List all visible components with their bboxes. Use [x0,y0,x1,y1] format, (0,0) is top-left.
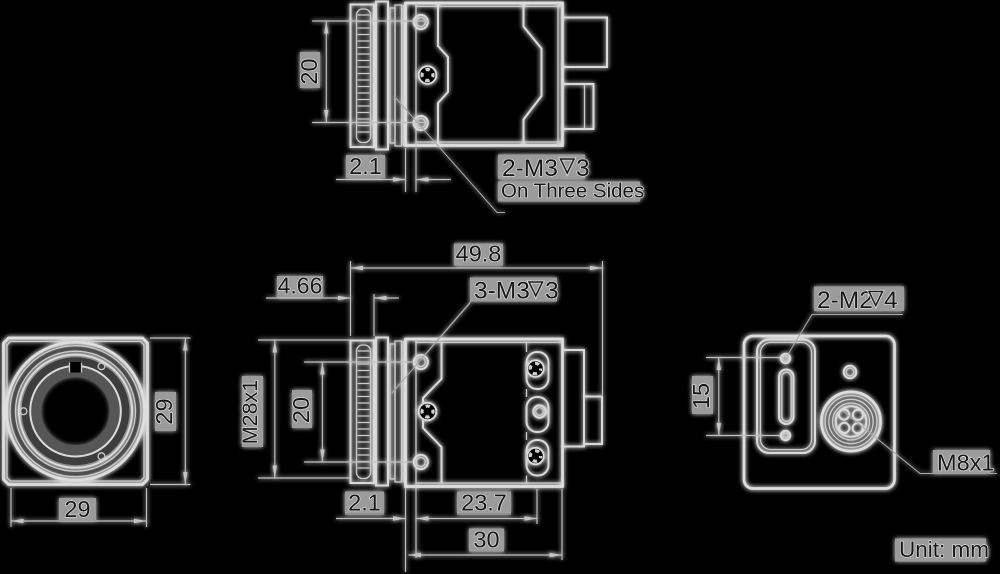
svg-text:20: 20 [288,397,314,423]
svg-text:2-M2: 2-M2 [817,287,873,314]
svg-text:Unit: mm: Unit: mm [899,537,989,562]
svg-text:15: 15 [688,383,714,409]
svg-text:4.66: 4.66 [278,273,323,299]
svg-text:49.8: 49.8 [456,241,502,267]
svg-text:29: 29 [64,496,90,522]
svg-text:2.1: 2.1 [349,153,382,179]
svg-text:3: 3 [545,278,559,305]
svg-text:4: 4 [884,287,898,314]
svg-text:M28x1: M28x1 [238,380,262,445]
svg-text:3-M3: 3-M3 [474,278,530,305]
svg-text:29: 29 [151,398,177,424]
svg-text:2.1: 2.1 [348,490,381,516]
svg-text:23.7: 23.7 [461,490,507,516]
svg-text:2-M3: 2-M3 [502,155,558,182]
svg-text:20: 20 [296,58,322,84]
svg-text:On Three Sides: On Three Sides [501,180,644,203]
svg-text:M8x1: M8x1 [937,450,994,476]
svg-text:3: 3 [576,155,590,182]
svg-text:30: 30 [473,527,499,553]
